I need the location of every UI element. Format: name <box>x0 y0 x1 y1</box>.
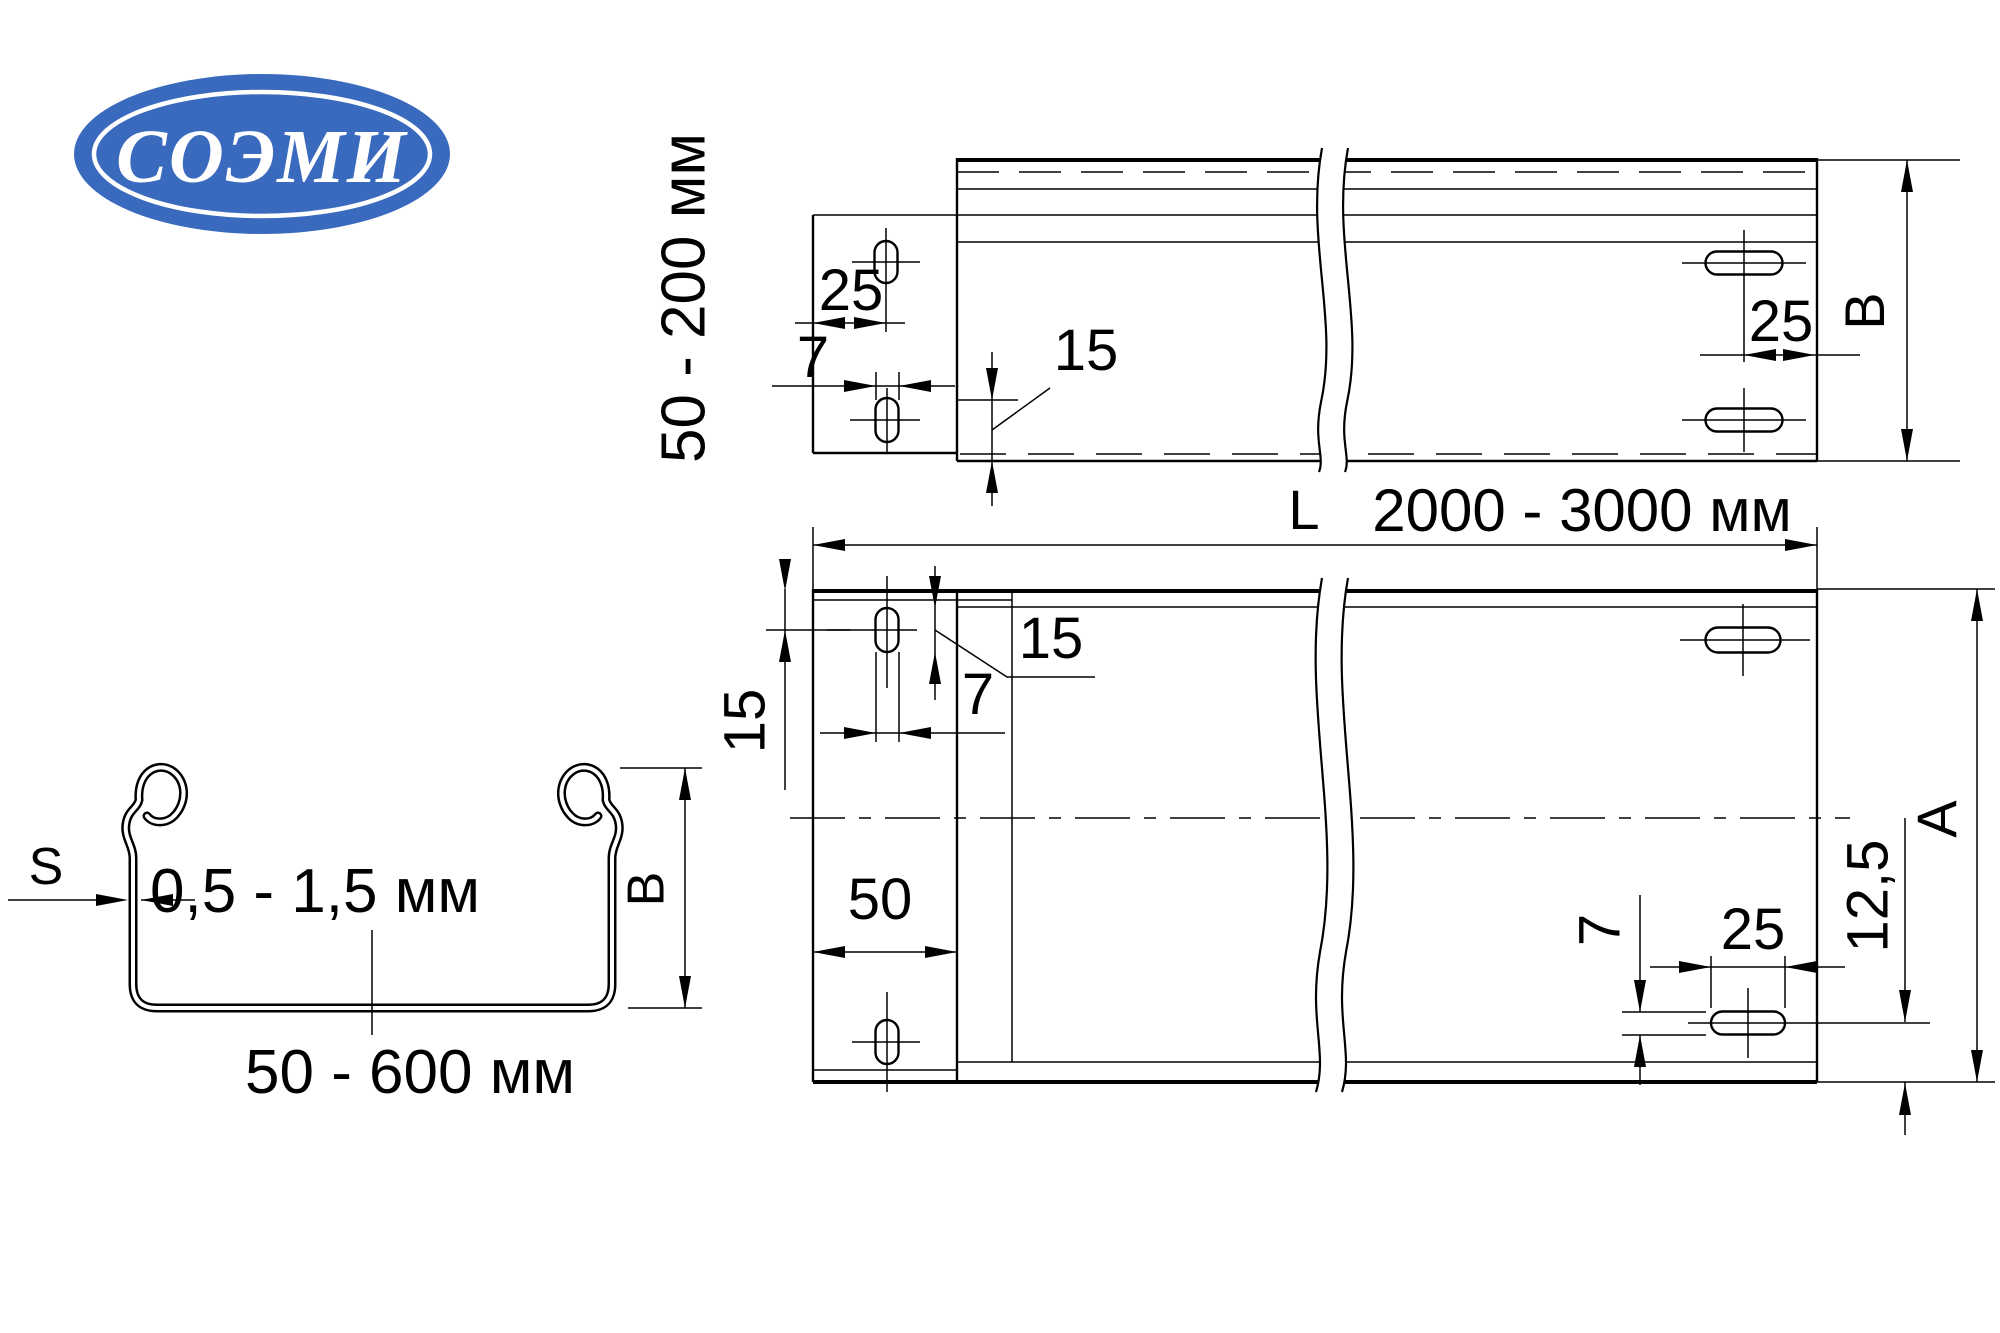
dim-length-range-label: 2000 - 3000 мм <box>1372 477 1791 544</box>
dim-hole-width-label: 7 <box>797 325 829 390</box>
cross-section-drawing: S 0,5 - 1,5 мм B 50 - 600 мм <box>8 767 702 1107</box>
dim-tab-hole-offset-label: 25 <box>819 258 884 323</box>
dim-right-hole-width: 7 <box>1567 895 1706 1085</box>
dim-hole-width-plan: 7 <box>820 652 1005 742</box>
dim-right-hole-length-label: 25 <box>1721 897 1786 962</box>
dim-tab-width: 50 <box>813 867 957 958</box>
dim-hole-length-label: 15 <box>1054 318 1119 383</box>
dim-length-prefix-label: L <box>1288 478 1319 541</box>
dim-width-a-label: A <box>1905 800 1968 838</box>
dim-thickness-s-label: S <box>29 838 64 896</box>
dim-hole-length-plan-label: 15 <box>1019 606 1084 671</box>
company-logo: СОЭМИ <box>74 74 450 234</box>
dim-top-offset-label: 15 <box>712 689 777 754</box>
technical-drawing-page: СОЭМИ <box>0 0 2000 1333</box>
dim-tab-width-label: 50 <box>848 867 913 932</box>
dim-height-b-label: B <box>1833 292 1896 329</box>
dim-section-height-b-label: B <box>618 872 676 907</box>
break-line <box>1317 148 1352 472</box>
dim-hole-width-plan-label: 7 <box>962 662 994 727</box>
dim-top-offset: 15 <box>712 559 850 790</box>
break-line <box>1316 578 1354 1092</box>
logo-text: СОЭМИ <box>116 115 409 199</box>
dim-hole-width: 7 <box>772 325 955 400</box>
side-view-height-range-label: 50 - 200 мм <box>649 133 718 463</box>
plan-view-drawing: 15 7 15 50 <box>712 559 1995 1135</box>
dim-hole-length: 15 <box>958 318 1118 506</box>
width-range-label: 50 - 600 мм <box>245 1038 575 1107</box>
dim-height-b: B <box>1817 160 1960 461</box>
side-view-drawing: 25 7 15 25 <box>649 133 1960 506</box>
dim-right-hole-width-label: 7 <box>1567 914 1632 946</box>
dim-bottom-offset: 12,5 <box>1835 818 1911 1135</box>
dim-edge-hole-offset-label: 25 <box>1749 289 1814 354</box>
dim-tab-hole-offset: 25 <box>795 258 905 329</box>
thickness-range-label: 0,5 - 1,5 мм <box>150 857 480 926</box>
dim-bottom-offset-label: 12,5 <box>1835 840 1900 953</box>
dim-length-l: L 2000 - 3000 мм <box>813 477 1817 592</box>
dim-section-height-b: B <box>618 768 702 1008</box>
